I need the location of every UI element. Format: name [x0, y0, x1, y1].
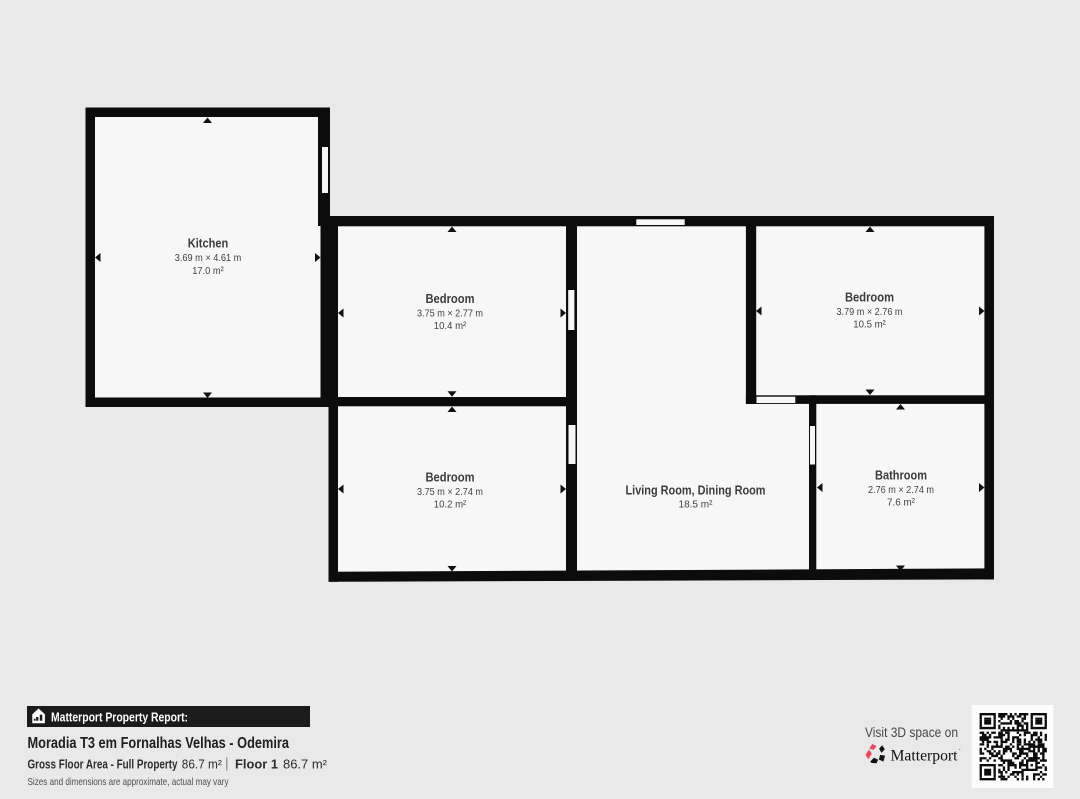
svg-text:Bedroom: Bedroom	[845, 290, 894, 305]
svg-text:7.6 m²: 7.6 m²	[887, 497, 915, 509]
svg-text:10.4 m²: 10.4 m²	[434, 320, 467, 332]
svg-text:Moradia T3 em Fornalhas Velhas: Moradia T3 em Fornalhas Velhas - Odemira	[28, 735, 290, 752]
svg-text:Sizes and dimensions are appro: Sizes and dimensions are approximate, ac…	[28, 776, 230, 788]
svg-text:86.7 m²: 86.7 m²	[283, 757, 328, 772]
svg-text:10.5 m²: 10.5 m²	[853, 319, 886, 331]
svg-text:3.75 m × 2.74 m: 3.75 m × 2.74 m	[417, 486, 483, 498]
svg-text:Living Room, Dining Room: Living Room, Dining Room	[626, 482, 766, 497]
svg-text:Bedroom: Bedroom	[426, 470, 475, 485]
svg-text:10.2 m²: 10.2 m²	[434, 499, 467, 511]
svg-text:Floor 1: Floor 1	[235, 757, 278, 772]
svg-text:18.5 m²: 18.5 m²	[679, 499, 713, 511]
svg-text:3.75 m × 2.77 m: 3.75 m × 2.77 m	[417, 308, 483, 320]
svg-text:2.76 m × 2.74 m: 2.76 m × 2.74 m	[868, 484, 934, 496]
svg-text:Kitchen: Kitchen	[188, 236, 229, 251]
svg-text:Matterport: Matterport	[891, 747, 959, 764]
svg-text:Visit 3D space on: Visit 3D space on	[865, 725, 958, 740]
svg-text:Gross Floor Area - Full Proper: Gross Floor Area - Full Property	[28, 757, 179, 772]
svg-text:Bedroom: Bedroom	[426, 291, 475, 306]
svg-text:17.0 m²: 17.0 m²	[192, 265, 224, 277]
svg-text:86.7 m²: 86.7 m²	[182, 757, 223, 772]
svg-text:Matterport Property Report:: Matterport Property Report:	[51, 711, 188, 725]
svg-text:´: ´	[959, 750, 961, 757]
svg-text:3.69 m × 4.61 m: 3.69 m × 4.61 m	[175, 252, 242, 264]
svg-text:3.79 m × 2.76 m: 3.79 m × 2.76 m	[837, 306, 903, 318]
svg-text:Bathroom: Bathroom	[875, 468, 927, 483]
